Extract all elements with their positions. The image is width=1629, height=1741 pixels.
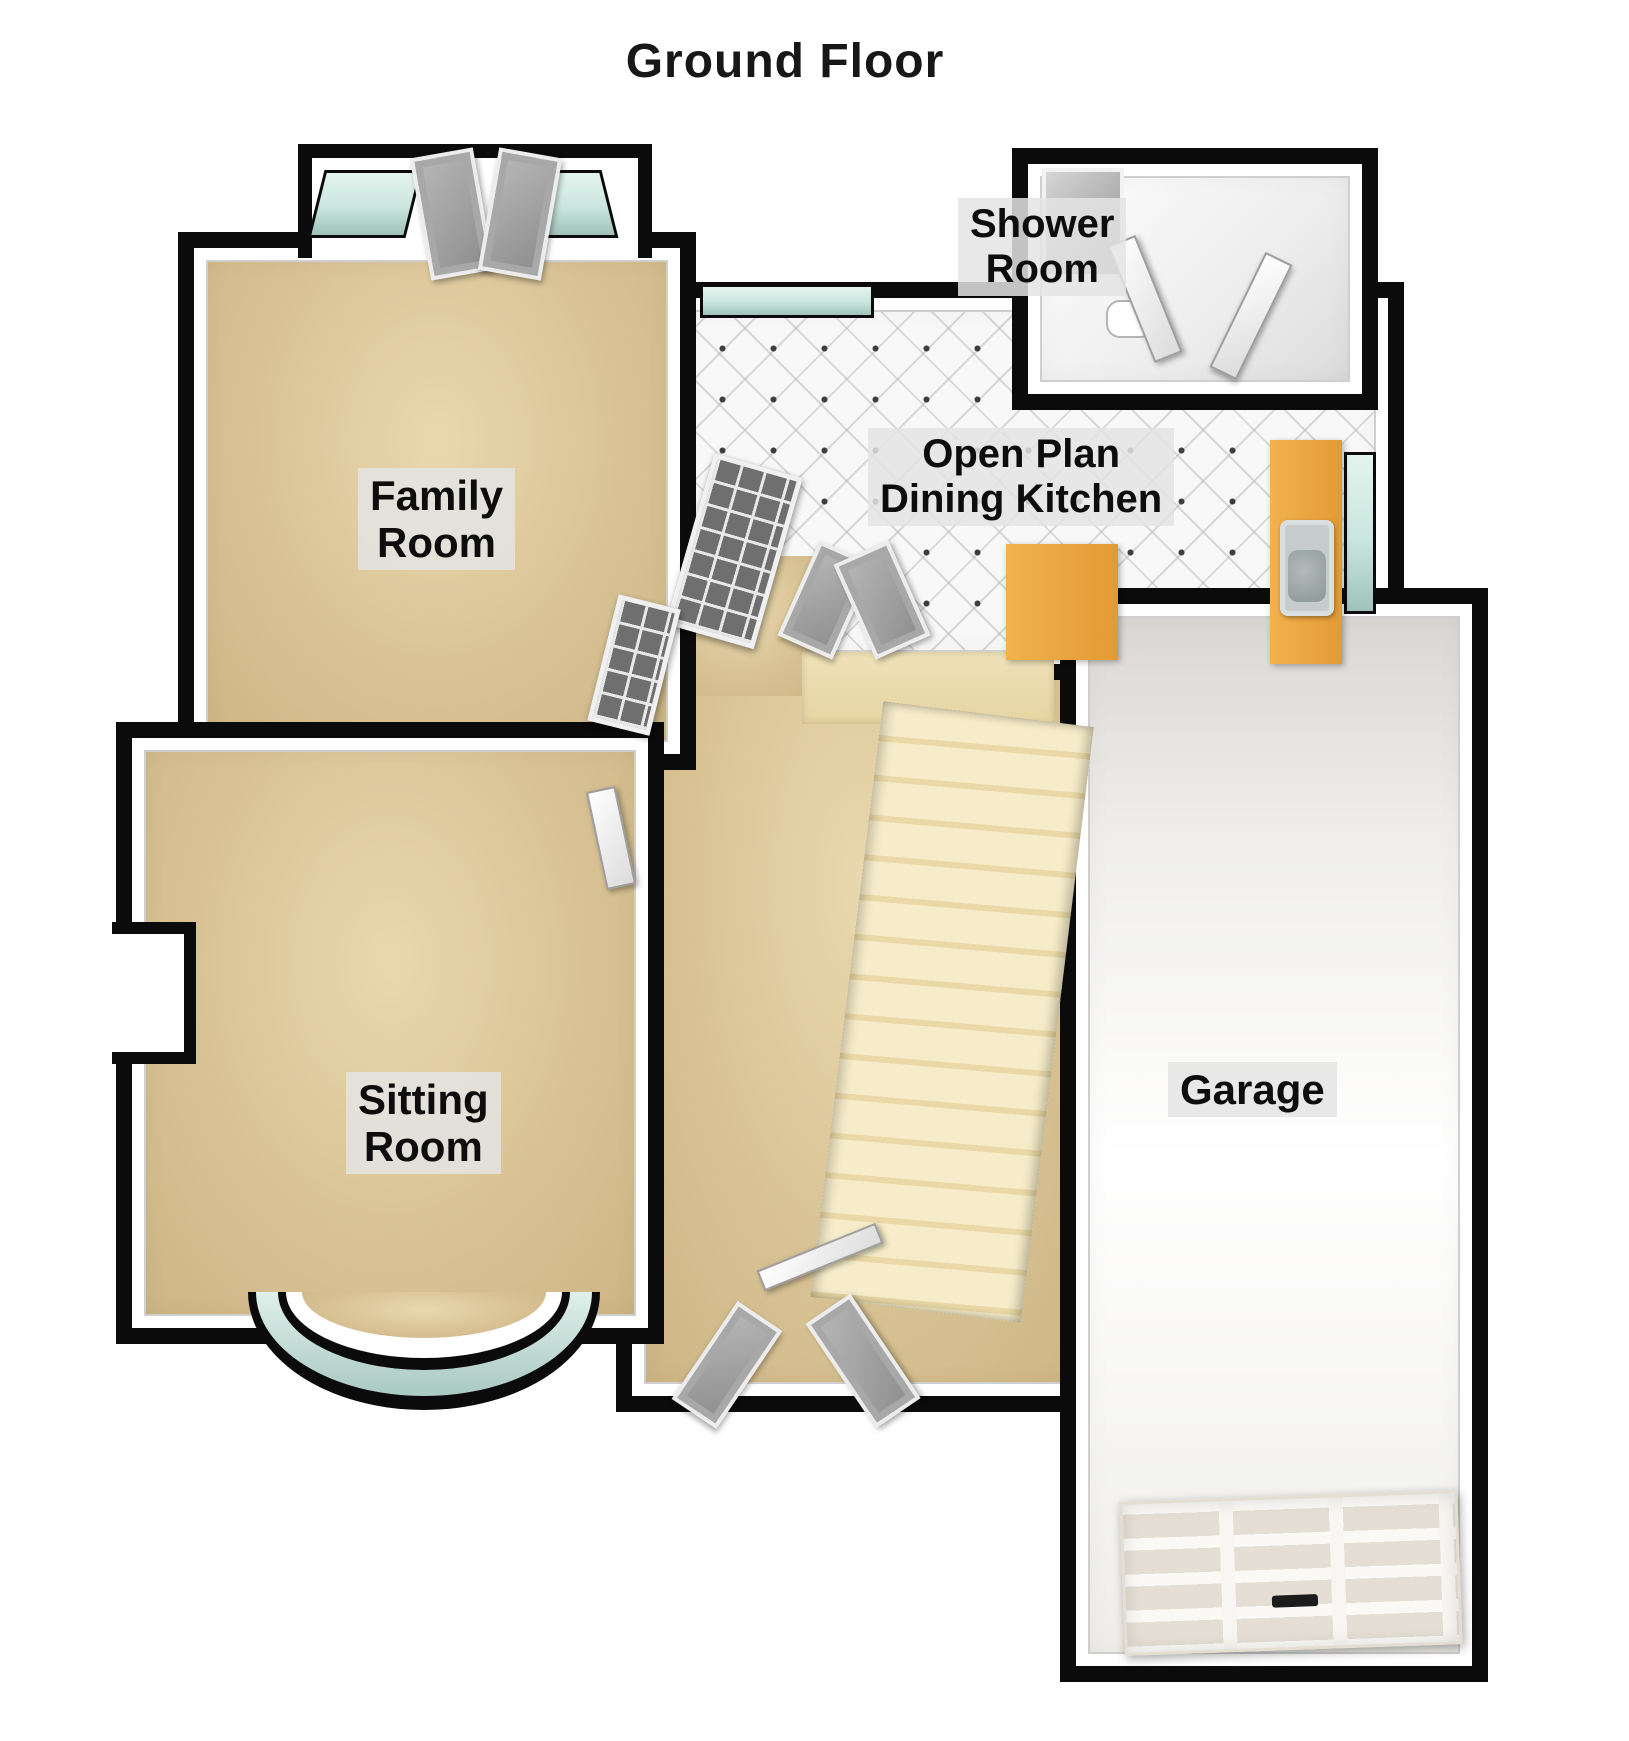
kitchen-sink: [1280, 520, 1334, 616]
sitting-room-floor: [116, 722, 664, 1344]
floor-plan: Ground Floor: [0, 0, 1629, 1741]
floor-title: Ground Floor: [0, 34, 1570, 89]
kitchen-window-top: [700, 284, 874, 318]
sink-bowl: [1288, 550, 1326, 602]
bay-window-left: [308, 170, 423, 238]
bow-window: [248, 1292, 600, 1410]
dining-table: [1006, 544, 1118, 660]
room-label-dining-kitchen: Open Plan Dining Kitchen: [868, 428, 1174, 526]
room-label-family-room: Family Room: [358, 468, 515, 570]
room-label-sitting-room: Sitting Room: [346, 1072, 501, 1174]
chimney-breast: [112, 922, 196, 1064]
garage-door-handle: [1272, 1594, 1318, 1608]
room-label-shower-room: Shower Room: [958, 198, 1126, 296]
garage-door: [1119, 1490, 1462, 1656]
room-label-garage: Garage: [1168, 1062, 1337, 1117]
kitchen-window-right: [1344, 452, 1376, 614]
